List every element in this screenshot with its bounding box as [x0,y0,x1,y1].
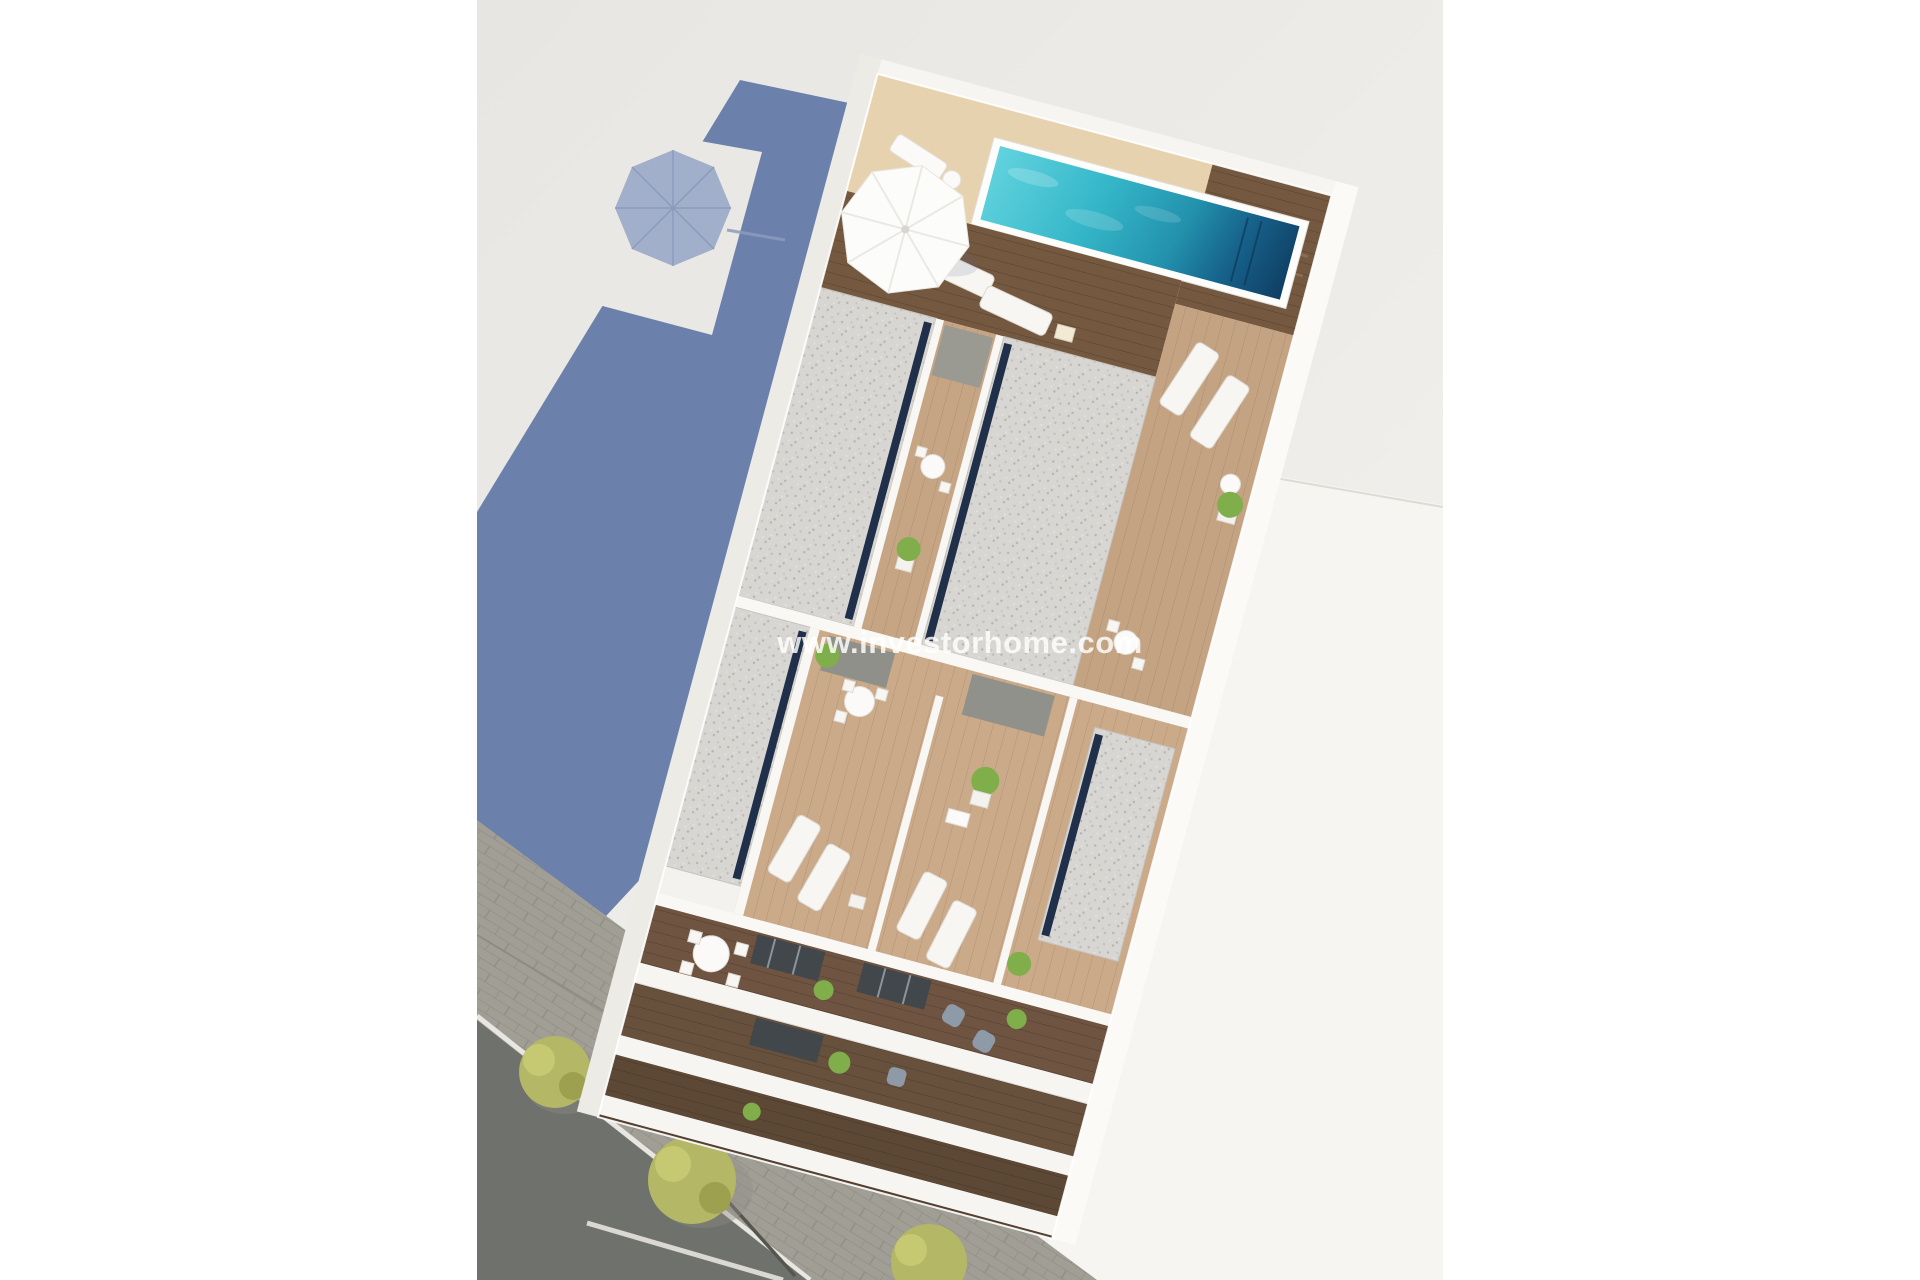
chair [875,688,888,701]
watermark-text: www.investorhome.com [776,625,1142,660]
chair [842,679,855,692]
property-render-image: www.investorhome.com [477,0,1443,1280]
chair [688,930,703,945]
page: www.investorhome.com [0,0,1920,1280]
render-scene: www.investorhome.com [477,0,1443,1280]
tree-foliage-light [655,1146,691,1182]
umbrella-shadow-ribs [615,150,731,266]
chair [679,961,694,976]
chair [915,446,927,458]
chair [726,973,741,988]
chair [734,942,749,957]
tree-foliage-light [895,1234,927,1266]
chair [834,710,847,723]
tree-foliage-light [523,1044,555,1076]
chair [939,481,951,493]
tree-foliage-dark [699,1182,731,1214]
